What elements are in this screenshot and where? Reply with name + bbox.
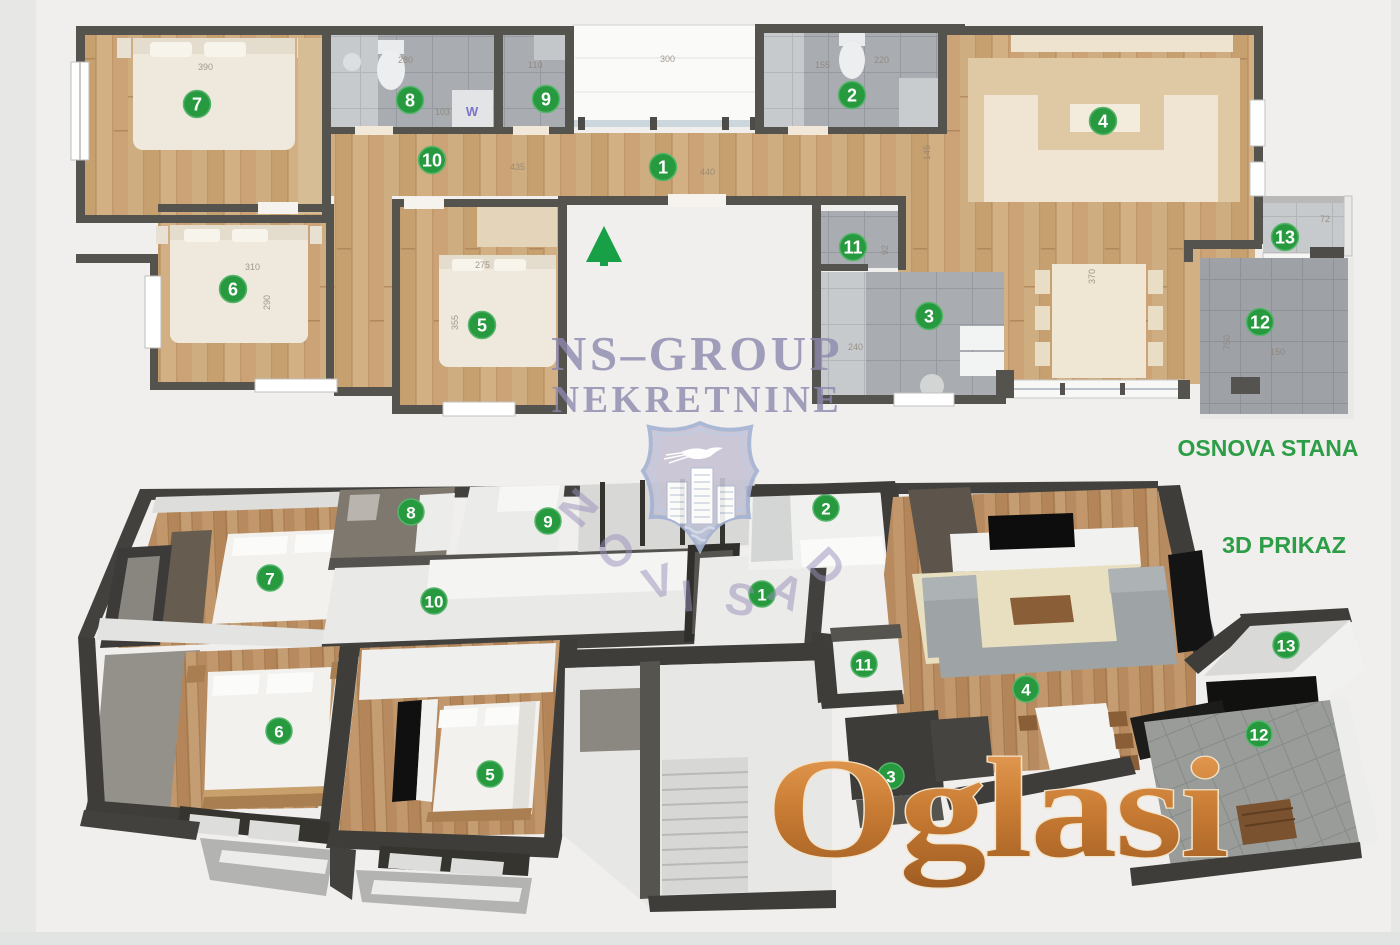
svg-text:12: 12 [1250,726,1269,745]
svg-text:145: 145 [922,145,932,160]
svg-text:10: 10 [422,151,442,171]
svg-text:300: 300 [660,54,675,64]
svg-text:4: 4 [1098,112,1108,132]
svg-text:750: 750 [1222,335,1232,350]
svg-text:5: 5 [477,316,487,336]
svg-text:13: 13 [1277,637,1296,656]
svg-text:440: 440 [700,167,715,177]
svg-text:2: 2 [847,86,857,106]
svg-text:W: W [466,104,479,119]
svg-text:11: 11 [843,238,862,258]
svg-text:3: 3 [924,307,934,327]
svg-text:11: 11 [855,656,873,675]
svg-text:7: 7 [265,570,274,589]
svg-text:2: 2 [821,500,830,519]
svg-text:155: 155 [815,60,830,70]
svg-text:Oglasi: Oglasi [766,729,1226,888]
svg-text:1: 1 [658,158,668,178]
svg-text:OSNOVA STANA: OSNOVA STANA [1177,435,1358,461]
svg-text:220: 220 [874,55,889,65]
svg-text:110: 110 [528,60,542,70]
svg-text:10: 10 [425,593,444,612]
svg-text:435: 435 [510,162,525,172]
svg-text:290: 290 [262,295,272,310]
svg-text:8: 8 [406,504,415,523]
svg-text:7: 7 [192,95,202,115]
svg-text:355: 355 [450,315,460,330]
svg-text:6: 6 [228,280,238,300]
svg-text:103: 103 [435,107,450,117]
svg-text:150: 150 [1270,347,1285,357]
svg-text:6: 6 [274,723,283,742]
svg-text:9: 9 [541,90,551,110]
svg-text:9: 9 [543,513,552,532]
svg-text:72: 72 [1320,214,1330,224]
svg-text:12: 12 [1250,313,1270,333]
svg-text:NS–GROUP: NS–GROUP [551,326,843,381]
svg-text:310: 310 [245,262,260,272]
svg-text:13: 13 [1275,228,1295,248]
svg-text:3D PRIKAZ: 3D PRIKAZ [1222,532,1346,558]
svg-text:8: 8 [405,91,415,111]
svg-text:390: 390 [198,62,213,72]
svg-text:280: 280 [398,55,413,65]
svg-text:4: 4 [1021,681,1031,700]
svg-text:370: 370 [1087,269,1097,284]
svg-text:5: 5 [485,766,494,785]
svg-text:NEKRETNINE: NEKRETNINE [552,379,843,421]
svg-text:92: 92 [880,245,890,255]
svg-text:240: 240 [848,342,863,352]
svg-text:275: 275 [475,260,490,270]
